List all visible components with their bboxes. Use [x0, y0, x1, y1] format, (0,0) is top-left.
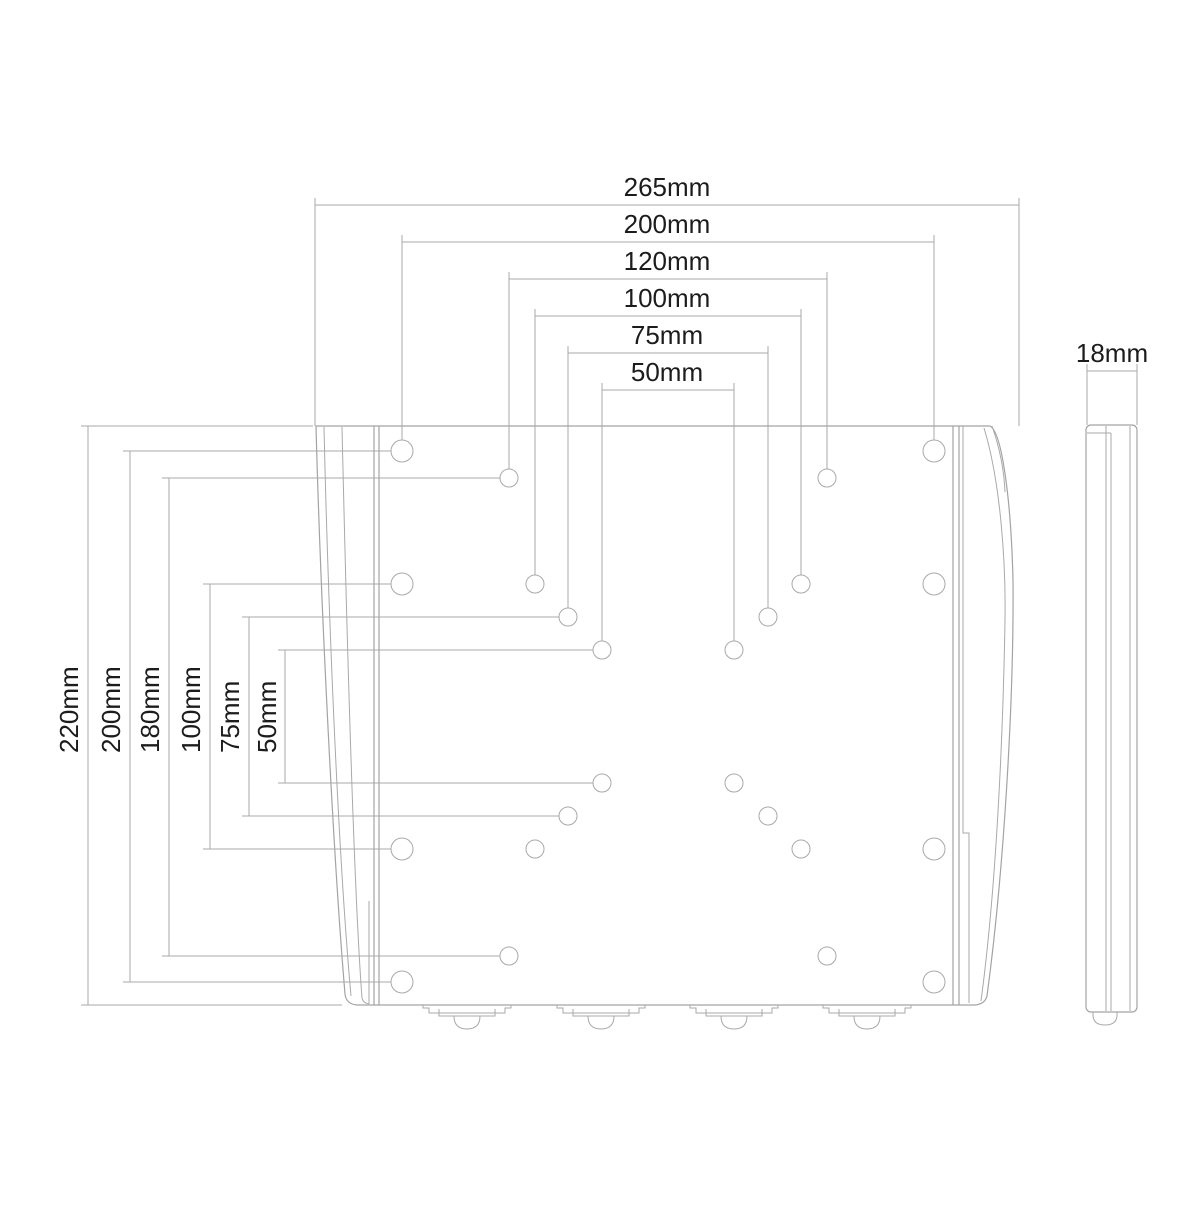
bracket-dimension-diagram: 265mm 200mm 120mm 100mm 75mm 50mm 220mm …	[0, 0, 1200, 1200]
dim-label-width-120: 120mm	[624, 246, 711, 276]
bottom-tab-outline	[423, 1005, 511, 1013]
dim-label-depth-18: 18mm	[1076, 338, 1148, 368]
mounting-hole	[391, 573, 413, 595]
mounting-hole	[391, 838, 413, 860]
mounting-hole	[391, 971, 413, 993]
mounting-hole	[923, 440, 945, 462]
bottom-tab-outline	[557, 1005, 645, 1013]
bottom-tab-screw-bump	[721, 1016, 747, 1029]
mounting-hole	[526, 840, 544, 858]
mounting-hole	[526, 575, 544, 593]
dim-label-height-180: 180mm	[135, 666, 165, 753]
dim-label-width-50: 50mm	[631, 357, 703, 387]
left-flap-contour-outer	[324, 427, 351, 996]
dim-label-width-75: 75mm	[631, 320, 703, 350]
side-view-body	[1086, 425, 1137, 1025]
front-view-plate	[316, 426, 1013, 1005]
mounting-hole	[593, 641, 611, 659]
mounting-hole	[500, 469, 518, 487]
technical-drawing-page: 265mm 200mm 120mm 100mm 75mm 50mm 220mm …	[0, 0, 1200, 1200]
mounting-hole	[792, 575, 810, 593]
mounting-hole	[500, 947, 518, 965]
mounting-hole	[923, 971, 945, 993]
mounting-hole	[725, 774, 743, 792]
dimension-labels: 265mm 200mm 120mm 100mm 75mm 50mm 220mm …	[54, 172, 1148, 753]
mounting-hole	[818, 469, 836, 487]
mounting-hole	[759, 608, 777, 626]
mounting-hole	[725, 641, 743, 659]
mounting-hole	[593, 774, 611, 792]
mounting-hole	[923, 838, 945, 860]
bottom-tab-screw-bump	[854, 1016, 880, 1029]
mounting-hole	[792, 840, 810, 858]
plate-outline	[316, 426, 1013, 1005]
dim-label-height-200: 200mm	[96, 666, 126, 753]
bottom-tab-screw-bump	[454, 1016, 480, 1029]
right-flap-contour-inner	[981, 428, 1005, 1001]
dim-label-width-100: 100mm	[624, 283, 711, 313]
mounting-hole	[391, 440, 413, 462]
dim-label-height-50: 50mm	[252, 681, 282, 753]
bottom-tab-outline	[823, 1005, 911, 1013]
dim-label-height-220: 220mm	[54, 666, 84, 753]
dim-label-height-75: 75mm	[215, 681, 245, 753]
mounting-hole	[759, 807, 777, 825]
generated-dimension-geometry	[81, 198, 1137, 1029]
dim-label-height-100: 100mm	[176, 666, 206, 753]
dim-label-width-200: 200mm	[624, 209, 711, 239]
bottom-tab-outline	[690, 1005, 778, 1013]
dim-label-width-265: 265mm	[624, 172, 711, 202]
side-profile-screw-bump	[1093, 1012, 1117, 1025]
mounting-hole	[818, 947, 836, 965]
mounting-hole	[559, 608, 577, 626]
mounting-hole	[923, 573, 945, 595]
left-flap-contour-inner	[342, 427, 369, 1004]
mounting-hole	[559, 807, 577, 825]
right-flap-step-line	[963, 426, 969, 1003]
bottom-tab-screw-bump	[588, 1016, 614, 1029]
